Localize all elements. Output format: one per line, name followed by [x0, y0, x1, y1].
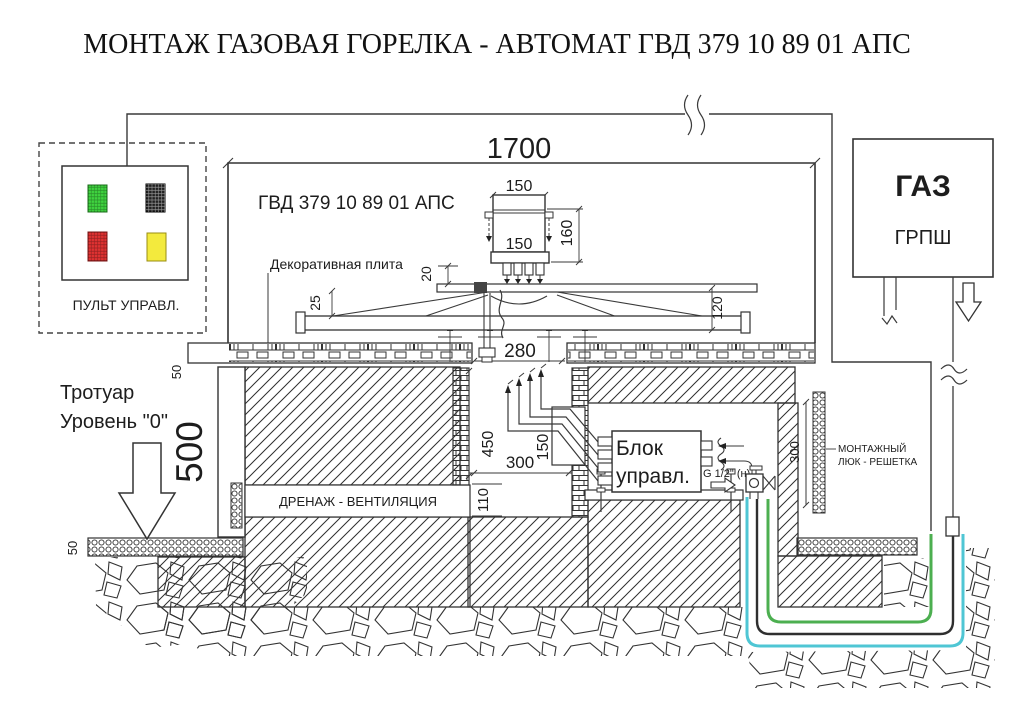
shaft-floor	[468, 517, 588, 607]
dim-110: 110	[475, 488, 492, 512]
anchor-bolt-icon	[537, 326, 561, 362]
pipe-union-icon	[479, 348, 495, 357]
dim-20: 20	[418, 266, 434, 282]
drawing-page: МОНТАЖ ГАЗОВАЯ ГОРЕЛКА - АВТОМАТ ГВД 379…	[0, 0, 1024, 707]
lamp-dark	[146, 184, 165, 212]
gas-flow-arrow-icon	[956, 283, 981, 321]
break-symbol-icon	[685, 95, 705, 135]
dim-120: 120	[709, 296, 725, 320]
riser-sleeve	[946, 517, 959, 536]
control-panel: ПУЛЬТ УПРАВЛ.	[39, 143, 206, 333]
gas-cock-icon	[746, 466, 775, 499]
underground-structure: ДРЕНАЖ - ВЕНТИЛЯЦИЯ 300 МОНТАЖНЫЙ ЛЮК - …	[88, 367, 995, 688]
right-wall	[778, 403, 798, 556]
gas-cabinet-name: ГАЗ	[895, 170, 951, 203]
dim-500: 500	[169, 421, 210, 483]
dim-50-paving: 50	[169, 365, 184, 379]
drainage-label: ДРЕНАЖ - ВЕНТИЛЯЦИЯ	[279, 494, 437, 509]
hatch-dim: 300	[787, 441, 802, 463]
electrode-tip-icon	[505, 364, 546, 393]
vent-grate-icon	[231, 483, 242, 528]
foundation-right	[778, 556, 882, 607]
mounting-stud-icon	[545, 212, 553, 242]
lamp-yellow	[147, 233, 166, 261]
burner-dim-inner: 150	[506, 236, 533, 253]
ground-level-arrow-icon	[119, 443, 175, 539]
pipe-stub-icon	[882, 277, 897, 324]
rubble-mid	[884, 558, 930, 607]
burner-dim-top: 150	[506, 178, 533, 195]
brick-column-left	[453, 368, 469, 485]
clamp-icon	[474, 282, 487, 293]
street-label-1: Тротуар	[60, 382, 134, 404]
burner-unit: 150 150 160	[485, 178, 583, 284]
chamber-floor	[588, 500, 740, 607]
control-block-label-1: Блок	[616, 437, 664, 460]
burner-dim-height: 160	[559, 220, 576, 247]
burner-nozzles	[503, 263, 544, 284]
drawing-title: МОНТАЖ ГАЗОВАЯ ГОРЕЛКА - АВТОМАТ ГВД 379…	[83, 29, 911, 60]
street-label-2: Уровень "0"	[60, 411, 168, 433]
fitting-label: G 1/2" (н)	[703, 468, 750, 480]
sidewalk-left	[88, 538, 243, 556]
plate-label: Декоративная плита	[270, 256, 403, 272]
control-block: Блок управл. G 1/2" (н)	[598, 431, 775, 499]
sidewalk-right	[797, 538, 917, 555]
control-panel-label: ПУЛЬТ УПРАВЛ.	[73, 297, 180, 313]
installation-diagram: МОНТАЖ ГАЗОВАЯ ГОРЕЛКА - АВТОМАТ ГВД 379…	[0, 0, 1024, 707]
enclosure-label: ГВД 379 10 89 01 АПС	[258, 193, 455, 214]
dim-280: 280	[504, 341, 536, 362]
dim-300-shaft: 300	[506, 453, 534, 472]
control-block-label-2: управл.	[616, 465, 690, 488]
hatch-label-2: ЛЮК - РЕШЕТКА	[838, 457, 917, 468]
left-concrete-block	[245, 367, 460, 485]
street-annotations: Тротуар Уровень "0" 500 50 50	[60, 365, 210, 555]
gas-cabinet-type: ГРПШ	[895, 227, 952, 249]
lamp-green	[88, 185, 107, 212]
right-ceiling-slab	[588, 367, 795, 403]
service-hatch-grate-icon	[813, 392, 825, 513]
dim-450: 450	[480, 431, 497, 458]
dim-1700: 1700	[487, 133, 552, 165]
mounting-stud-icon	[485, 212, 493, 242]
hatch-label-1: МОНТАЖНЫЙ	[838, 442, 906, 455]
dim-25: 25	[307, 295, 323, 311]
junction-box	[552, 407, 585, 465]
dim-150-shaft: 150	[535, 434, 552, 461]
dim-50-sidewalk: 50	[65, 541, 80, 555]
lamp-red	[88, 232, 107, 261]
rubble-bottom	[160, 607, 744, 656]
break-symbol-icon	[941, 365, 967, 384]
flex-hose-icon	[499, 290, 504, 338]
